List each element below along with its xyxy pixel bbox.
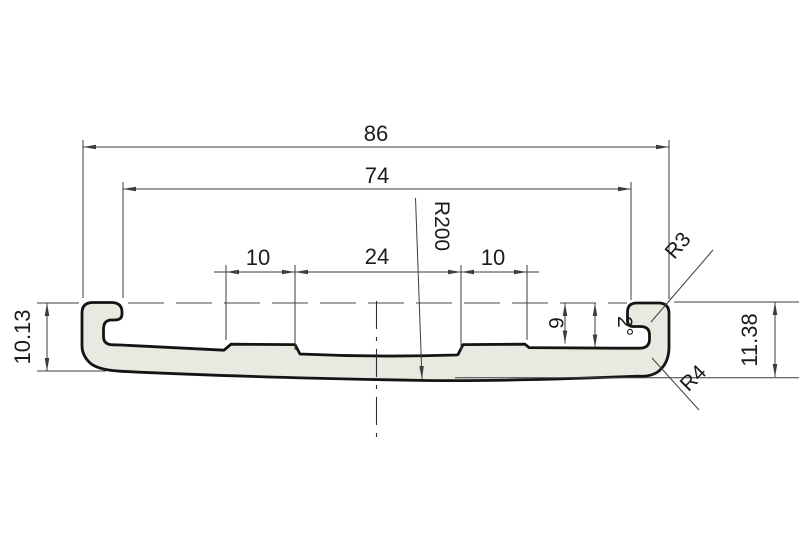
leader-line [416,198,423,379]
dim-step-depth: 6 [544,303,567,344]
dim-text-draft-angle: 2° [613,316,636,336]
dim-text-overall-width: 86 [364,121,388,146]
technical-drawing: 86 74 10 24 10 10.13 11.38 [0,0,804,557]
dim-text-left-pad: 10 [246,245,270,270]
drawing-canvas: 86 74 10 24 10 10.13 11.38 [0,0,804,557]
leader-line [651,250,713,322]
dim-text-right-height: 11.38 [737,313,762,366]
dim-text-r200: R200 [430,201,453,251]
dim-inner-width: 74 [123,163,631,300]
dim-text-r3: R3 [661,228,696,263]
dim-text-inner-width: 74 [365,163,389,188]
dim-text-step-depth: 6 [544,317,567,329]
profile-cross-section [82,303,669,381]
dim-text-center: 24 [365,244,389,269]
dim-text-left-height: 10.13 [10,309,35,364]
dim-top-features: 10 24 10 [214,244,539,350]
dim-text-right-pad: 10 [481,245,505,270]
callout-r200: R200 [416,198,454,379]
